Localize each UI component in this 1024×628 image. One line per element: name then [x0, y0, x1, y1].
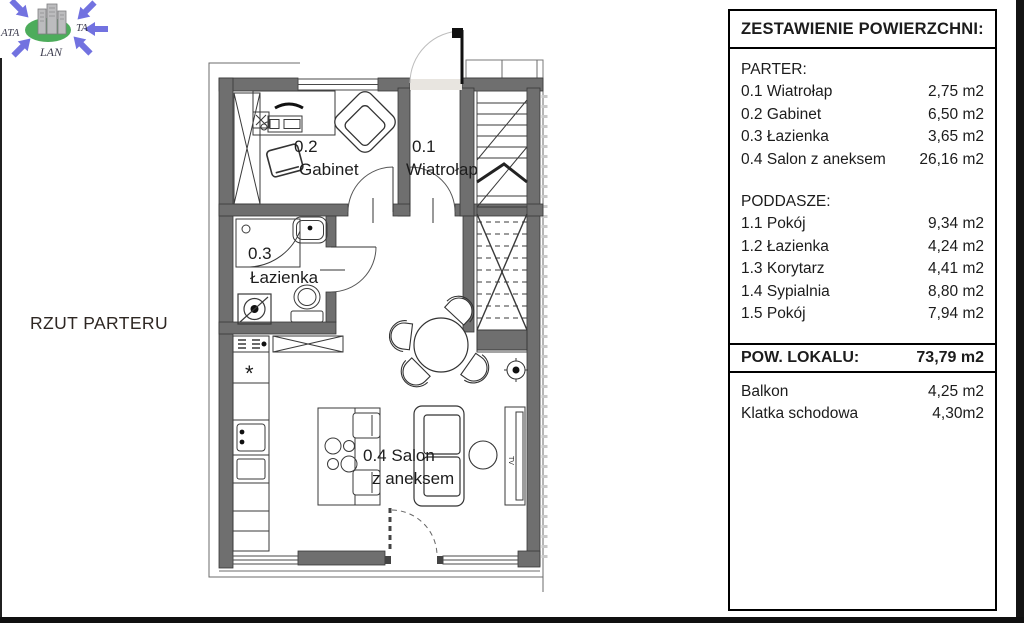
panel-title: ZESTAWIENIE POWIERZCHNI: [728, 9, 997, 49]
plan-caption: RZUT PARTERU [30, 313, 168, 334]
room-area: 8,80 m2 [928, 281, 984, 303]
room-area: 4,41 m2 [928, 258, 984, 280]
room-area: 7,94 m2 [928, 303, 984, 325]
label-salon-1: 0.4 Salon [363, 446, 435, 465]
kitchen-star: * [245, 361, 254, 386]
panel-room-list: PARTER: 0.1 Wiatrołap 2,75 m2 0.2 Gabine… [728, 47, 997, 345]
area-row: Balkon 4,25 m2 [741, 381, 984, 403]
area-row: 1.4 Sypialnia 8,80 m2 [741, 281, 984, 303]
room-area: 9,34 m2 [928, 213, 984, 235]
area-row: 1.2 Łazienka 4,24 m2 [741, 236, 984, 258]
dining-table [414, 318, 468, 372]
logo: ATA TA LAN [0, 0, 110, 60]
room-label: 1.2 Łazienka [741, 236, 829, 258]
area-row: 1.1 Pokój 9,34 m2 [741, 213, 984, 235]
panel-extras: Balkon 4,25 m2 Klatka schodowa 4,30m2 [728, 371, 997, 611]
washing-machine [238, 294, 271, 324]
logo-text-right: TA [76, 22, 88, 34]
side-table [469, 441, 497, 469]
room-label: 1.5 Pokój [741, 303, 806, 325]
area-row: 0.2 Gabinet 6,50 m2 [741, 104, 984, 126]
label-salon-2: z aneksem [372, 469, 454, 488]
room-area: 4,30m2 [932, 403, 984, 425]
section-heading-poddasze: PODDASZE: [741, 191, 984, 213]
room-area: 4,25 m2 [928, 381, 984, 403]
label-gabinet: Gabinet [299, 160, 359, 179]
room-area: 26,16 m2 [919, 149, 984, 171]
total-value: 73,79 m2 [916, 349, 984, 367]
label-lazienka-num: 0.3 [248, 244, 272, 263]
logo-buildings [38, 4, 66, 34]
room-area: 2,75 m2 [928, 81, 984, 103]
label-gabinet-num: 0.2 [294, 137, 318, 156]
scan-edge-bottom [0, 617, 1024, 623]
area-row: 0.4 Salon z aneksem 26,16 m2 [741, 149, 984, 171]
area-row: 0.1 Wiatrołap 2,75 m2 [741, 81, 984, 103]
page: { "logo": { "left": "ATA", "right": "TA"… [0, 0, 1024, 623]
entrance-door [410, 28, 463, 90]
logo-text-bottom: LAN [39, 45, 63, 59]
room-label: 0.3 Łazienka [741, 126, 829, 148]
area-row: Klatka schodowa 4,30m2 [741, 403, 984, 425]
total-label: POW. LOKALU: [741, 349, 859, 367]
area-summary-panel: ZESTAWIENIE POWIERZCHNI: PARTER: 0.1 Wia… [728, 9, 997, 611]
area-row: 1.3 Korytarz 4,41 m2 [741, 258, 984, 280]
label-lazienka: Łazienka [250, 268, 319, 287]
area-row: 1.5 Pokój 7,94 m2 [741, 303, 984, 325]
area-row: 0.3 Łazienka 3,65 m2 [741, 126, 984, 148]
tv-label: TV [507, 456, 514, 465]
staircase [477, 91, 527, 352]
panel-total: POW. LOKALU: 73,79 m2 [728, 343, 997, 373]
room-area: 3,65 m2 [928, 126, 984, 148]
stair-steps-upper [477, 103, 527, 207]
room-area: 6,50 m2 [928, 104, 984, 126]
scan-edge-left [0, 58, 2, 617]
room-label: Klatka schodowa [741, 403, 858, 425]
room-label: 0.4 Salon z aneksem [741, 149, 886, 171]
armchair [331, 88, 399, 156]
room-label: Balkon [741, 381, 788, 403]
label-wiatrolap: Wiatrołap [406, 160, 478, 179]
stair-steps-lower [477, 222, 527, 318]
room-area: 4,24 m2 [928, 236, 984, 258]
toilet [291, 285, 323, 322]
room-label: 1.1 Pokój [741, 213, 806, 235]
wardrobe [234, 93, 260, 204]
scan-edge-right [1016, 0, 1024, 623]
bathroom-sink [293, 217, 327, 243]
section-heading-parter: PARTER: [741, 59, 984, 81]
room-label: 0.2 Gabinet [741, 104, 821, 126]
room-label: 1.3 Korytarz [741, 258, 825, 280]
desk [253, 91, 335, 135]
label-wiatrolap-num: 0.1 [412, 137, 436, 156]
room-label: 0.1 Wiatrołap [741, 81, 832, 103]
logo-text-left: ATA [0, 27, 20, 39]
floor-symbol [504, 358, 528, 382]
room-label: 1.4 Sypialnia [741, 281, 830, 303]
